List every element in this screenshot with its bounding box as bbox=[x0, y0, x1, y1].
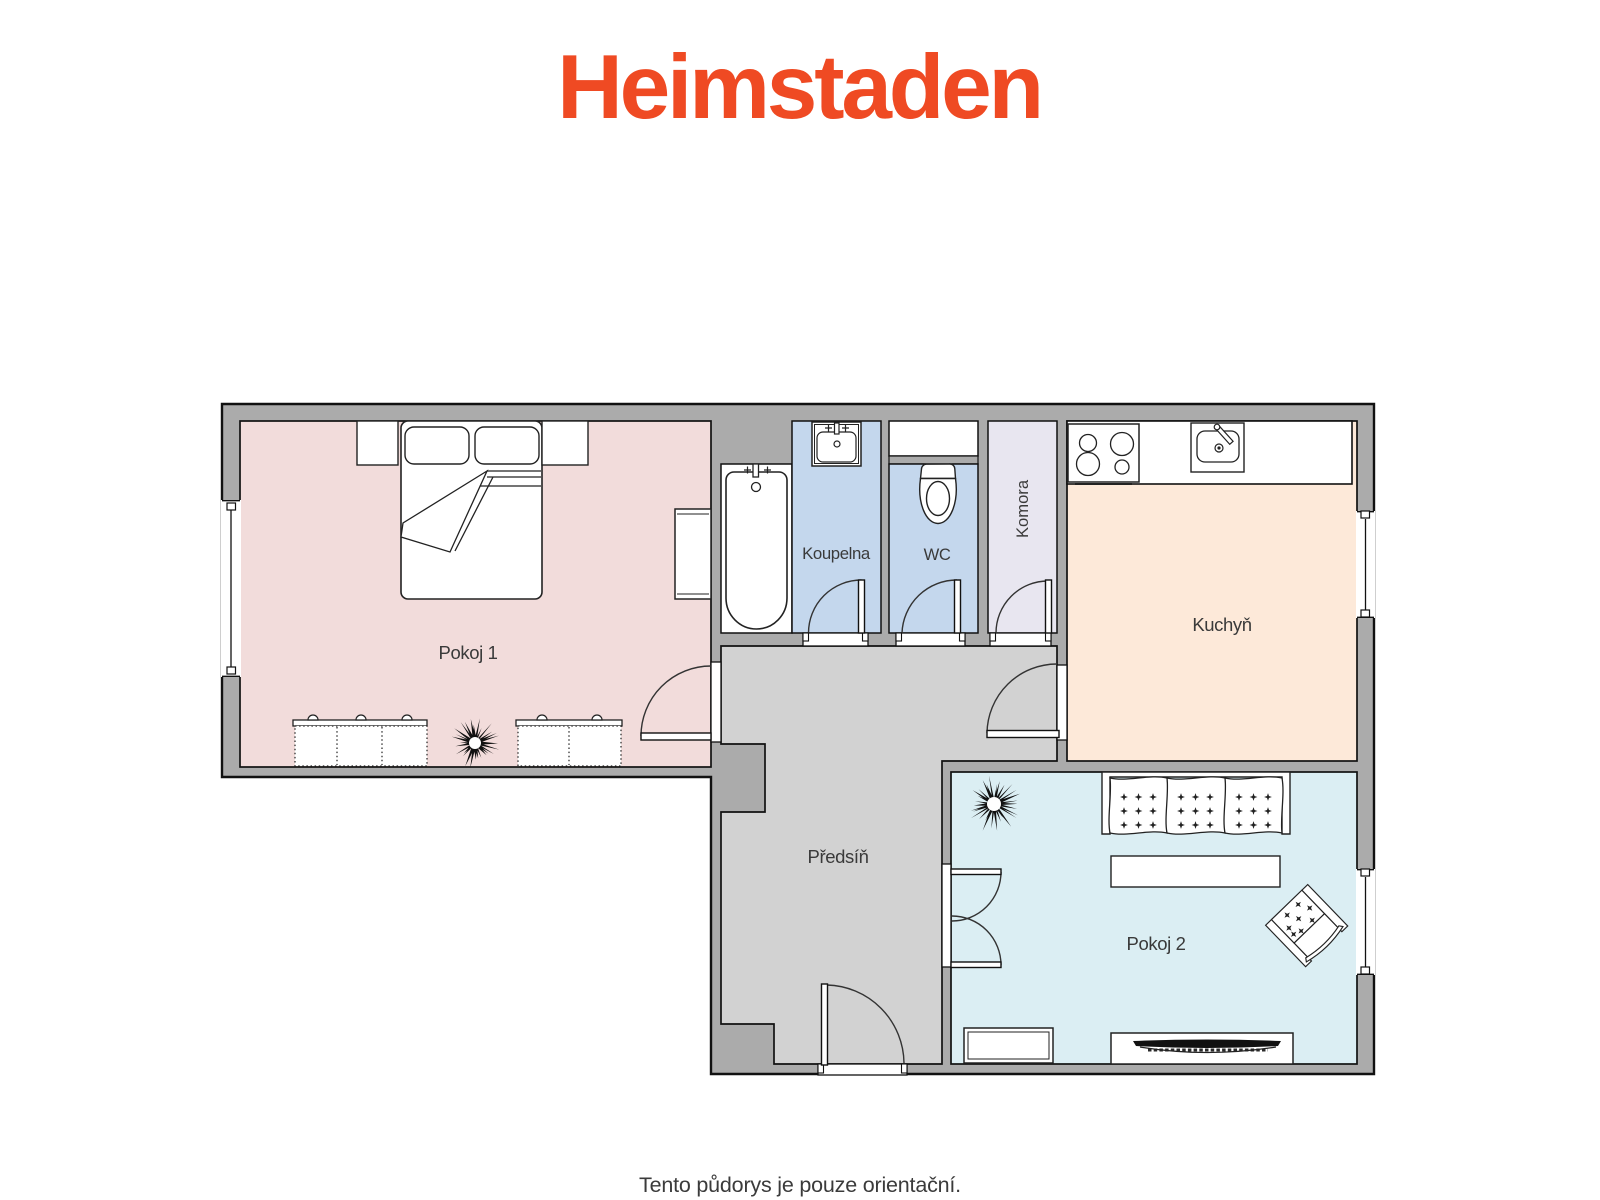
svg-text:Tento půdorys je pouze orienta: Tento půdorys je pouze orientační. bbox=[639, 1173, 961, 1197]
svg-text:Komora: Komora bbox=[1013, 479, 1032, 538]
svg-text:Koupelna: Koupelna bbox=[802, 544, 871, 563]
svg-text:Předsíň: Předsíň bbox=[808, 846, 869, 867]
svg-text:Kuchyň: Kuchyň bbox=[1192, 614, 1251, 635]
svg-text:Pokoj 1: Pokoj 1 bbox=[439, 642, 498, 663]
svg-text:Heimstaden: Heimstaden bbox=[557, 37, 1041, 138]
svg-text:Pokoj 2: Pokoj 2 bbox=[1127, 933, 1186, 954]
svg-text:WC: WC bbox=[924, 545, 951, 564]
